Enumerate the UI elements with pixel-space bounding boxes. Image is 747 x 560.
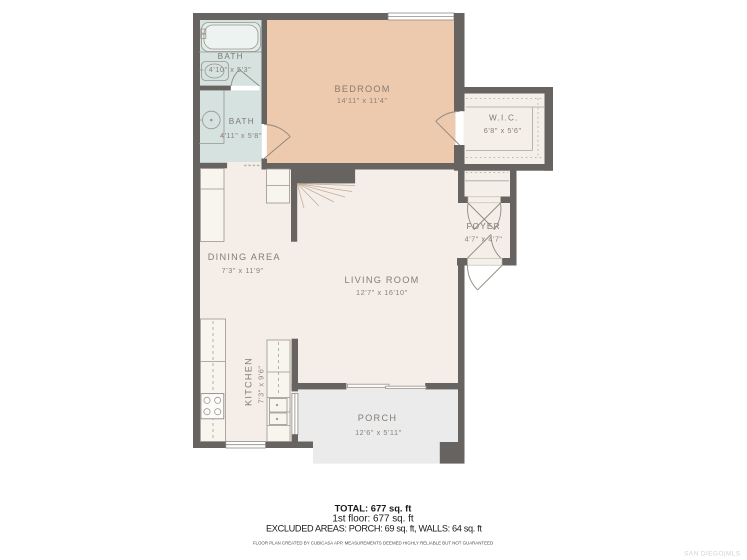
svg-text:12'7" x 16'10": 12'7" x 16'10": [356, 288, 408, 297]
svg-text:BEDROOM: BEDROOM: [334, 84, 390, 94]
svg-text:SAN DIEGO|MLS: SAN DIEGO|MLS: [684, 551, 741, 558]
svg-text:14'11" x 11'4": 14'11" x 11'4": [337, 96, 388, 105]
svg-text:4'11" x 5'8": 4'11" x 5'8": [220, 131, 262, 140]
svg-text:4'7" x 4'7": 4'7" x 4'7": [465, 235, 503, 244]
svg-text:FLOOR PLAN CREATED BY CUBICASA: FLOOR PLAN CREATED BY CUBICASA APP. MEAS…: [253, 541, 493, 546]
svg-text:BATH: BATH: [218, 52, 244, 61]
svg-text:7'3" x 11'9": 7'3" x 11'9": [222, 266, 264, 275]
svg-text:KITCHEN: KITCHEN: [244, 357, 254, 406]
svg-text:TOTAL: 677 sq. ft: TOTAL: 677 sq. ft: [335, 503, 412, 514]
svg-text:12'6" x 5'11": 12'6" x 5'11": [355, 428, 402, 437]
svg-text:LIVING ROOM: LIVING ROOM: [344, 275, 419, 285]
svg-text:DINING AREA: DINING AREA: [208, 252, 281, 262]
svg-text:PORCH: PORCH: [358, 413, 397, 423]
svg-text:6'8" x 5'6": 6'8" x 5'6": [484, 126, 522, 135]
svg-text:BATH: BATH: [229, 117, 255, 126]
svg-text:4'10" x 5'3": 4'10" x 5'3": [209, 65, 252, 74]
svg-text:EXCLUDED AREAS: PORCH: 69 sq.: EXCLUDED AREAS: PORCH: 69 sq. ft, WALLS:…: [266, 524, 482, 534]
svg-text:FOYER: FOYER: [466, 222, 500, 231]
svg-text:W.I.C.: W.I.C.: [489, 113, 519, 122]
svg-text:7'3" x 9'6": 7'3" x 9'6": [257, 366, 266, 404]
